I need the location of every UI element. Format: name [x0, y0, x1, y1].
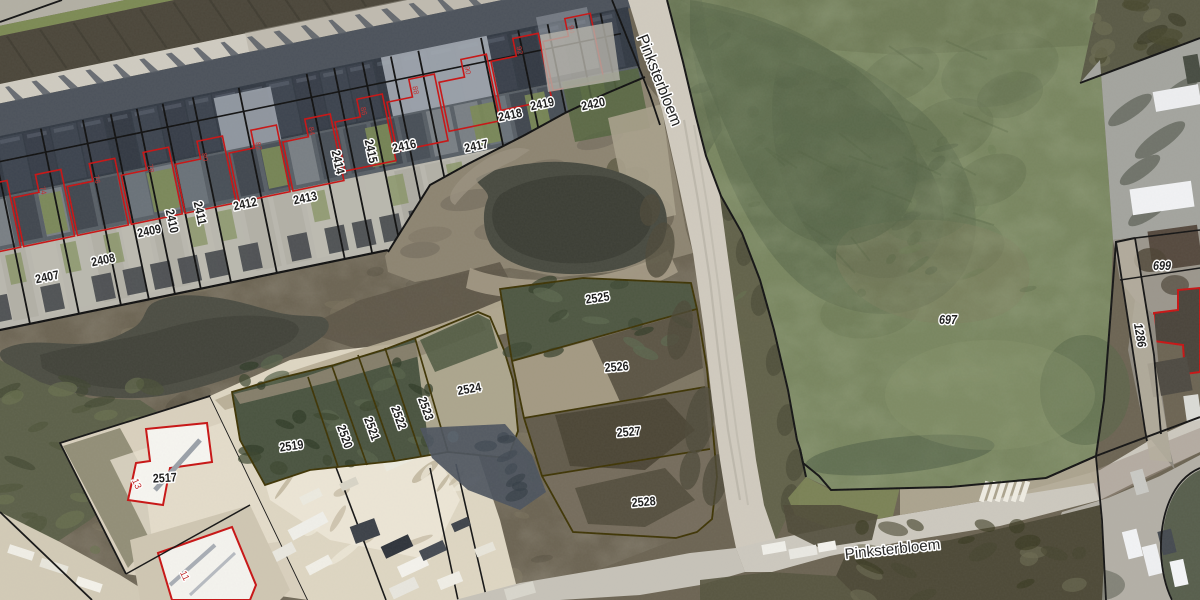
svg-text:2527: 2527	[616, 424, 641, 440]
svg-text:2526: 2526	[604, 359, 629, 375]
svg-text:697: 697	[939, 313, 958, 327]
svg-text:699: 699	[1153, 259, 1171, 273]
svg-text:2528: 2528	[631, 494, 656, 510]
svg-text:2517: 2517	[152, 470, 177, 485]
